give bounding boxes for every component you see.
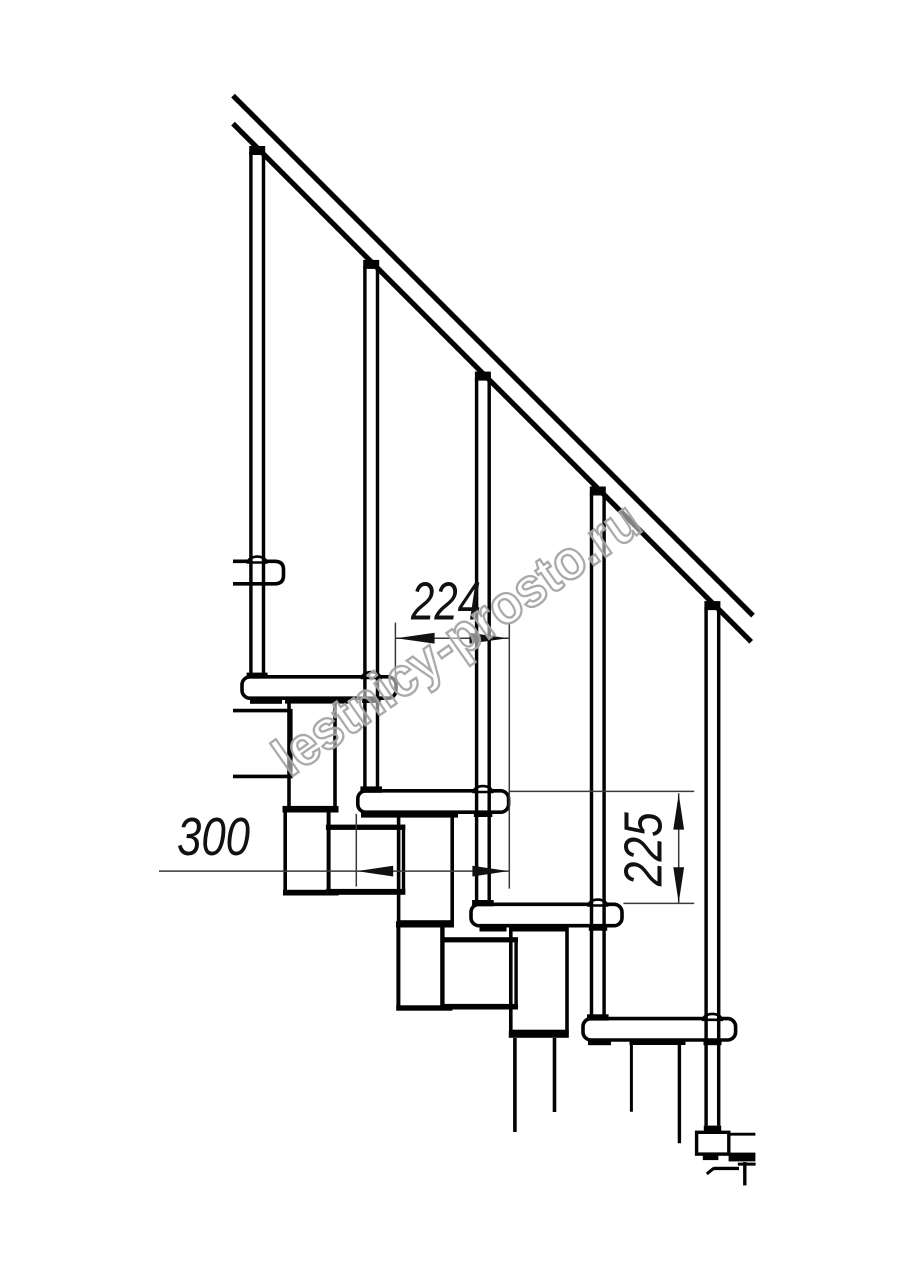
svg-text:225: 225 xyxy=(614,811,674,887)
svg-text:300: 300 xyxy=(177,807,250,867)
